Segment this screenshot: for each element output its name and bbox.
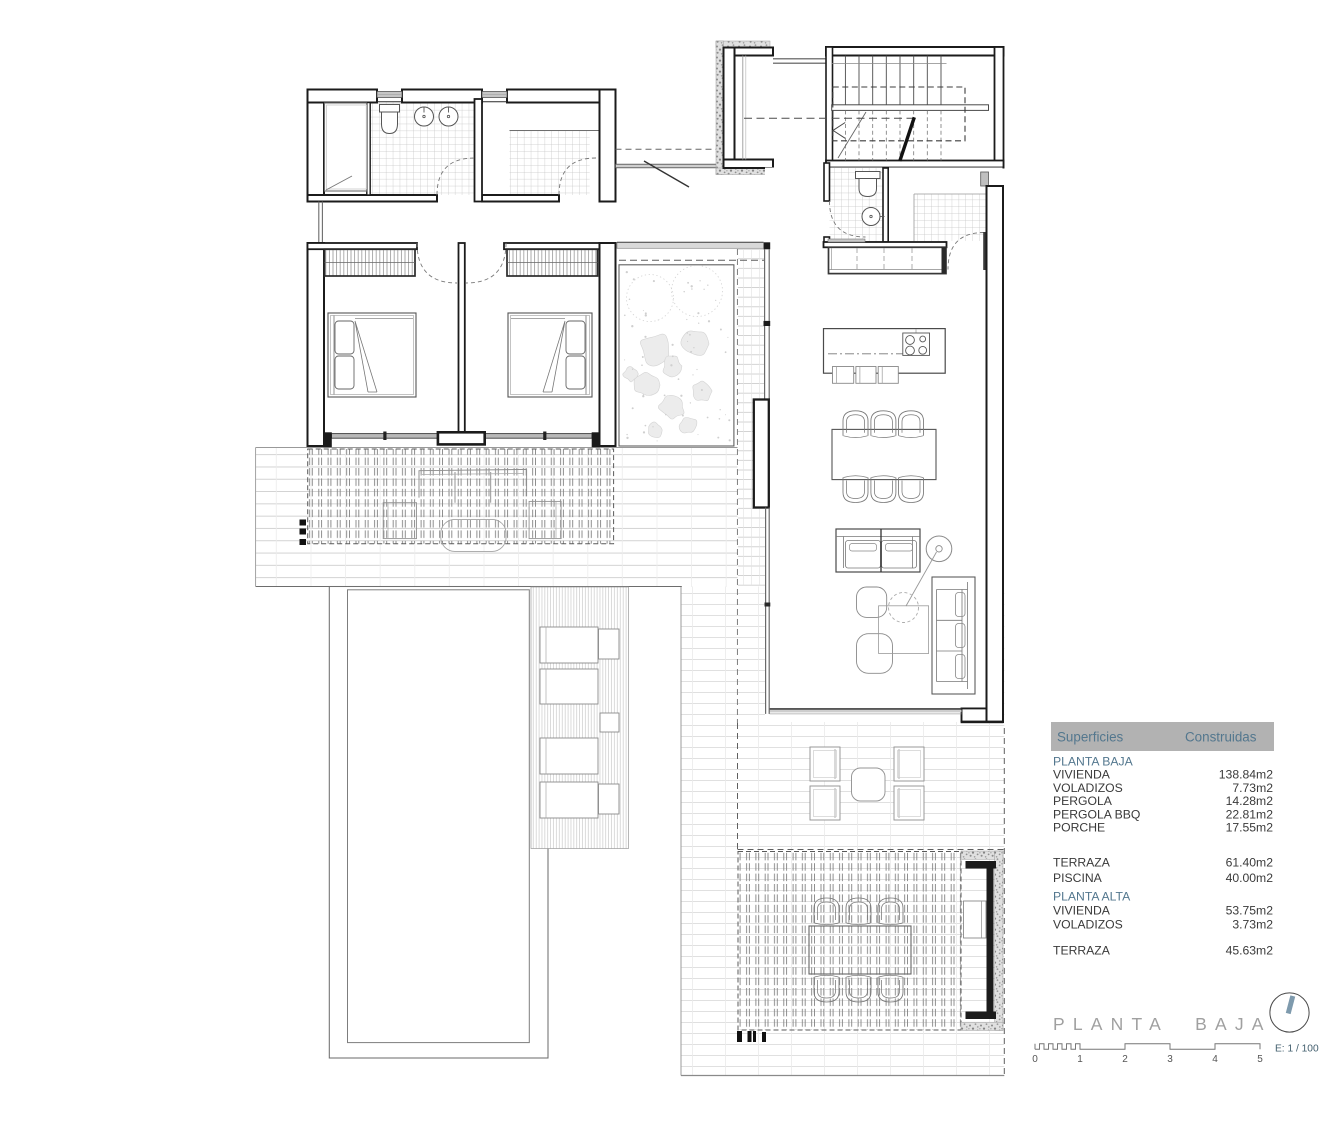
svg-text:VOLADIZOS: VOLADIZOS xyxy=(1053,918,1123,932)
svg-text:VIVIENDA: VIVIENDA xyxy=(1053,768,1111,782)
svg-text:7.73m2: 7.73m2 xyxy=(1232,781,1273,795)
svg-text:Superficies: Superficies xyxy=(1057,730,1124,745)
svg-text:0: 0 xyxy=(1032,1054,1038,1065)
svg-text:TERRAZA: TERRAZA xyxy=(1053,856,1111,870)
svg-text:Construidas: Construidas xyxy=(1185,730,1257,745)
svg-text:PISCINA: PISCINA xyxy=(1053,871,1103,885)
svg-text:PLANTA BAJA: PLANTA BAJA xyxy=(1053,755,1134,769)
svg-text:4: 4 xyxy=(1212,1054,1218,1065)
svg-text:PLANTA BAJA: PLANTA BAJA xyxy=(1053,1014,1272,1034)
svg-text:VIVIENDA: VIVIENDA xyxy=(1053,904,1111,918)
svg-text:PERGOLA BBQ: PERGOLA BBQ xyxy=(1053,807,1140,821)
svg-text:PLANTA ALTA: PLANTA ALTA xyxy=(1053,890,1131,904)
svg-text:40.00m2: 40.00m2 xyxy=(1226,871,1274,885)
svg-text:2: 2 xyxy=(1122,1054,1128,1065)
svg-text:TERRAZA: TERRAZA xyxy=(1053,944,1111,958)
svg-text:VOLADIZOS: VOLADIZOS xyxy=(1053,781,1123,795)
svg-text:61.40m2: 61.40m2 xyxy=(1226,856,1274,870)
svg-text:PORCHE: PORCHE xyxy=(1053,821,1105,835)
svg-text:E: 1 / 100: E: 1 / 100 xyxy=(1275,1044,1319,1055)
svg-text:PERGOLA: PERGOLA xyxy=(1053,794,1113,808)
svg-text:22.81m2: 22.81m2 xyxy=(1226,807,1274,821)
svg-text:53.75m2: 53.75m2 xyxy=(1226,904,1274,918)
svg-text:14.28m2: 14.28m2 xyxy=(1226,794,1274,808)
svg-text:45.63m2: 45.63m2 xyxy=(1226,944,1274,958)
svg-text:1: 1 xyxy=(1077,1054,1083,1065)
svg-text:5: 5 xyxy=(1257,1054,1263,1065)
svg-text:138.84m2: 138.84m2 xyxy=(1219,768,1273,782)
svg-text:3.73m2: 3.73m2 xyxy=(1232,918,1273,932)
svg-text:3: 3 xyxy=(1167,1054,1173,1065)
svg-text:17.55m2: 17.55m2 xyxy=(1226,821,1274,835)
